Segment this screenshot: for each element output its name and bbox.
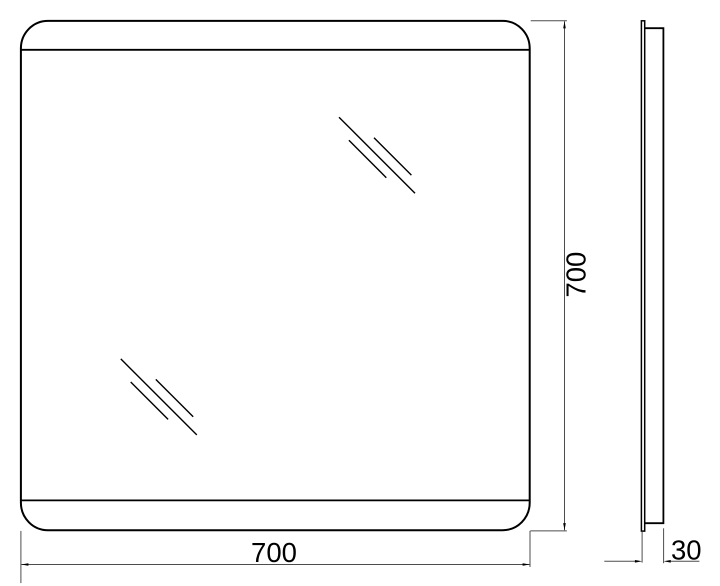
svg-text:700: 700 bbox=[561, 252, 592, 298]
svg-text:30: 30 bbox=[671, 535, 702, 566]
svg-text:700: 700 bbox=[251, 537, 297, 568]
